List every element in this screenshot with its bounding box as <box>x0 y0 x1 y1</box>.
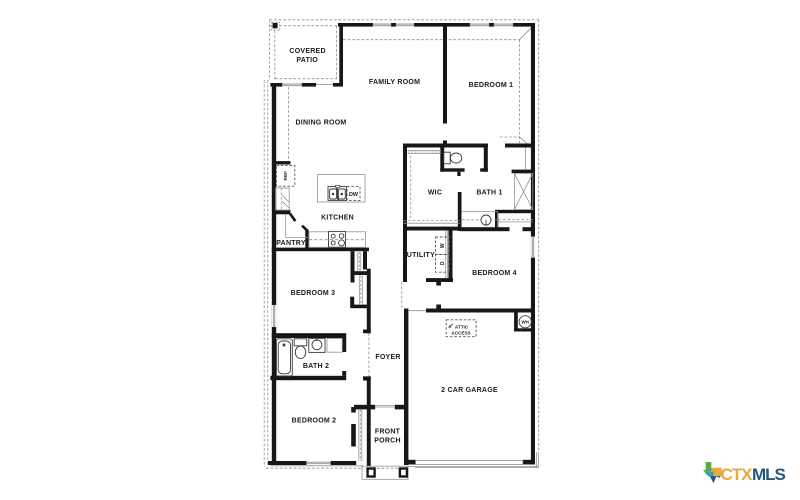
svg-text:UTILITY: UTILITY <box>407 252 435 259</box>
svg-text:BEDROOM 3: BEDROOM 3 <box>291 290 336 297</box>
svg-text:COVERED: COVERED <box>289 48 325 55</box>
svg-text:FOYER: FOYER <box>375 354 400 361</box>
svg-text:PATIO: PATIO <box>296 57 318 64</box>
svg-text:ATTIC: ATTIC <box>455 324 469 329</box>
svg-text:BEDROOM 2: BEDROOM 2 <box>292 418 337 425</box>
svg-text:ACCESS: ACCESS <box>451 331 470 336</box>
svg-text:FAMILY ROOM: FAMILY ROOM <box>369 79 420 86</box>
svg-text:MLS: MLS <box>752 465 786 484</box>
svg-text:DW: DW <box>349 192 359 198</box>
svg-text:WIC: WIC <box>428 189 442 196</box>
svg-text:BEDROOM 4: BEDROOM 4 <box>472 270 517 277</box>
svg-text:PANTRY: PANTRY <box>276 240 306 247</box>
svg-text:2 CAR GARAGE: 2 CAR GARAGE <box>441 387 498 394</box>
svg-text:CTX: CTX <box>721 465 754 484</box>
svg-text:W: W <box>440 243 446 248</box>
svg-text:REF: REF <box>283 171 289 181</box>
svg-text:D: D <box>440 261 446 265</box>
svg-text:BATH 1: BATH 1 <box>476 189 502 196</box>
svg-text:PORCH: PORCH <box>374 438 401 445</box>
svg-text:BEDROOM 1: BEDROOM 1 <box>469 82 514 89</box>
svg-text:KITCHEN: KITCHEN <box>321 214 354 221</box>
svg-text:BATH 2: BATH 2 <box>303 363 329 370</box>
svg-text:DINING ROOM: DINING ROOM <box>296 120 347 127</box>
svg-text:FRONT: FRONT <box>375 428 401 435</box>
svg-text:WH: WH <box>522 320 529 325</box>
